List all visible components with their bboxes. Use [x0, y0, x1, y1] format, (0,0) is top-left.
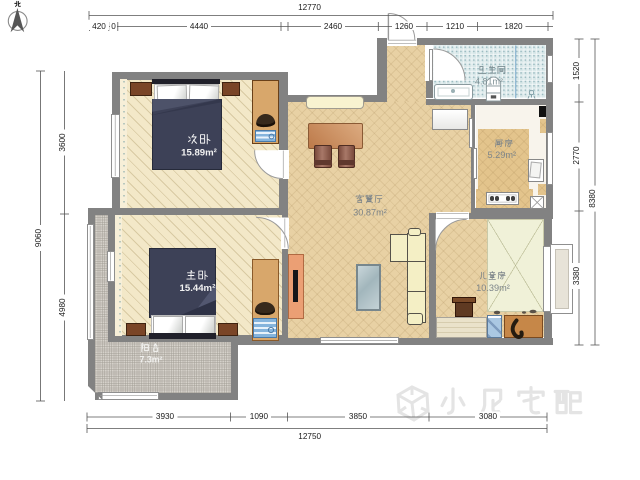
svg-text:3930: 3930: [156, 412, 175, 421]
svg-text:4.81m²: 4.81m²: [475, 76, 503, 86]
svg-text:7.3m²: 7.3m²: [140, 355, 163, 365]
svg-text:3080: 3080: [479, 412, 498, 421]
svg-text:2460: 2460: [324, 22, 343, 31]
svg-text:10.39m²: 10.39m²: [476, 283, 510, 293]
svg-text:4980: 4980: [58, 298, 67, 317]
svg-text:3850: 3850: [349, 412, 368, 421]
svg-text:1260: 1260: [395, 22, 414, 31]
svg-text:12770: 12770: [298, 3, 321, 12]
svg-text:8380: 8380: [588, 189, 597, 208]
svg-text:1210: 1210: [446, 22, 465, 31]
svg-text:3600: 3600: [58, 133, 67, 152]
svg-text:12750: 12750: [298, 432, 321, 441]
svg-text:5.29m²: 5.29m²: [487, 150, 516, 160]
svg-text:3380: 3380: [572, 266, 581, 285]
svg-text:15.44m²: 15.44m²: [180, 283, 216, 294]
svg-text:15.89m²: 15.89m²: [181, 148, 217, 159]
svg-text:30.87m²: 30.87m²: [353, 208, 387, 218]
svg-text:1520: 1520: [572, 61, 581, 80]
svg-text:9060: 9060: [34, 228, 43, 247]
svg-text:4440: 4440: [190, 22, 209, 31]
svg-text:1090: 1090: [250, 412, 269, 421]
svg-text:0: 0: [111, 22, 116, 31]
svg-text:420: 420: [92, 22, 106, 31]
svg-text:2770: 2770: [572, 146, 581, 165]
svg-text:1820: 1820: [504, 22, 523, 31]
